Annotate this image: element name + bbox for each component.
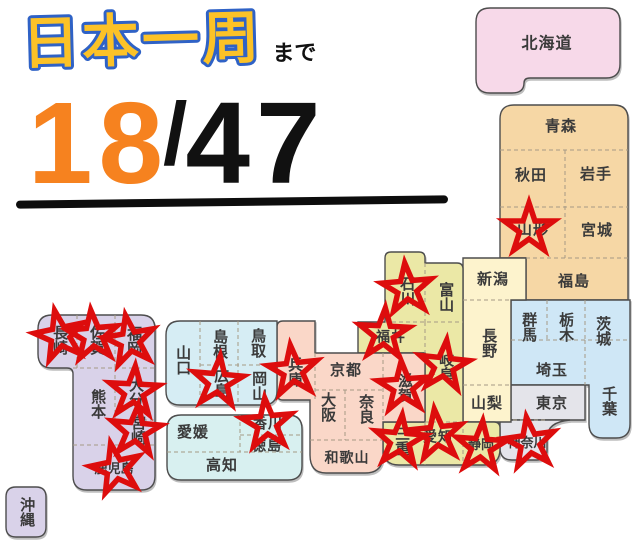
prefecture-label-tokushima: 徳島 [252,438,282,453]
prefecture-label-tottori: 鳥取 [249,328,265,358]
total-count: 47 [185,88,326,198]
progress-counter: 18 / 47 [28,88,327,198]
prefecture-label-nara: 奈良 [357,394,373,424]
prefecture-label-fukushima: 福島 [558,274,590,290]
prefecture-label-gunma: 群馬 [520,312,536,342]
prefecture-label-kagoshima: 鹿児島 [94,462,133,476]
prefecture-label-okayama: 岡山 [250,371,266,401]
prefecture-label-shizuoka: 静岡 [468,438,494,452]
visited-count: 18 [28,88,169,198]
prefecture-label-saitama: 埼玉 [536,363,568,379]
prefecture-label-nagasaki: 長崎 [51,325,67,355]
prefecture-label-ehime: 愛媛 [177,425,209,441]
prefecture-label-iwate: 岩手 [580,167,612,183]
prefecture-label-kochi: 高知 [206,458,238,474]
prefecture-label-yamanashi: 山梨 [471,396,503,412]
prefecture-label-ishikawa: 石川 [398,276,414,306]
prefecture-label-kumamoto: 熊本 [89,389,105,419]
prefecture-label-gifu: 岐阜 [437,352,453,382]
prefecture-label-oita: 大分 [127,377,143,407]
prefecture-label-miyagi: 宮城 [581,223,613,239]
prefecture-label-hiroshima: 広島 [212,368,228,398]
prefecture-label-tochigi: 栃木 [557,312,573,342]
prefecture-label-shimane: 島根 [211,329,227,359]
prefecture-label-niigata: 新潟 [477,272,509,288]
prefecture-label-akita: 秋田 [515,168,547,184]
prefecture-label-nagano: 長野 [480,328,496,358]
prefecture-label-tokyo: 東京 [536,396,568,412]
prefecture-label-mie: 三重 [393,426,409,456]
prefecture-label-toyama: 富山 [437,282,453,312]
japan-tour-infographic: 日本一周 まで 18 / 47 北海道 青森 秋田 岩手 山形 宮城 福島 新潟… [0,0,640,548]
prefecture-label-kanagawa: 神奈川 [507,436,546,450]
prefecture-label-fukui: 福井 [376,329,406,344]
prefecture-label-saga: 佐賀 [88,325,104,355]
prefecture-label-yamaguchi: 山口 [174,345,190,375]
prefecture-label-hyogo: 兵庫 [286,357,302,387]
prefecture-label-hokkaido: 北海道 [521,35,572,52]
prefecture-label-aichi: 愛知 [423,429,453,444]
prefecture-label-miyazaki: 宮崎 [129,415,145,445]
prefecture-label-osaka: 大阪 [319,392,335,422]
prefecture-label-ibaraki: 茨城 [594,316,610,346]
prefecture-label-aomori: 青森 [545,119,577,135]
prefecture-label-chiba: 千葉 [600,386,616,416]
page-title: 日本一周 [21,6,263,76]
prefecture-label-yamagata: 山形 [517,222,549,238]
prefecture-label-kagawa: 香川 [253,416,283,431]
prefecture-label-fukuoka: 福岡 [125,326,141,356]
page-title-suffix: まで [272,40,317,66]
prefecture-label-okinawa: 沖縄 [18,497,34,527]
prefecture-label-wakayama: 和歌山 [325,450,370,465]
counter-separator: / [163,92,187,176]
prefecture-label-shiga: 滋賀 [396,373,412,403]
prefecture-label-kyoto: 京都 [330,363,362,379]
